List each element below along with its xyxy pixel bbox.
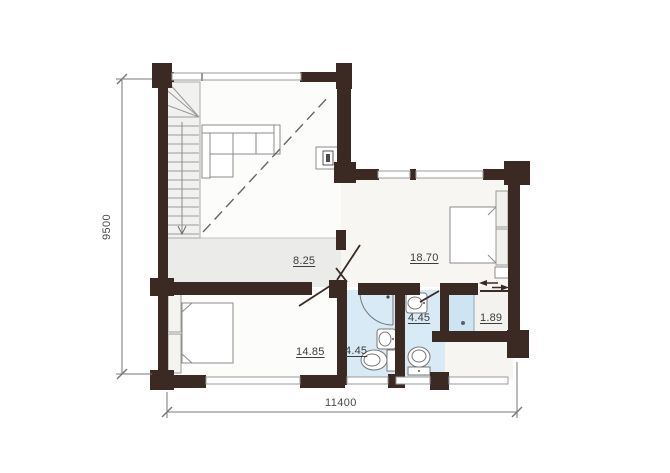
- bottom-wall: [150, 375, 206, 388]
- staircase: [164, 82, 200, 238]
- window: [378, 171, 410, 178]
- washbasin-bath2: [406, 293, 427, 313]
- window-mullion: [388, 374, 396, 388]
- room-area-label-bedroom-main: 18.70: [410, 252, 439, 264]
- bottom-wall: [300, 375, 345, 388]
- double-bed-second: [168, 292, 233, 373]
- room-area-label-bathroom-wc: 4.45: [408, 312, 430, 324]
- bathroom-left-wall: [337, 295, 347, 385]
- bedroom-bottom-wall: [358, 283, 420, 295]
- right-wall: [508, 168, 520, 338]
- junction-post: [430, 372, 449, 390]
- shower-hinge-dot: [386, 295, 389, 298]
- cabin-wall: [440, 295, 449, 333]
- entry-bottom-wall: [432, 331, 508, 342]
- toilet-bath2: [408, 347, 430, 375]
- left-wall: [158, 72, 168, 388]
- washbasin-bath1: [377, 329, 396, 349]
- top-wall: [300, 72, 338, 82]
- dimension-depth-label: 9500: [101, 214, 113, 240]
- hall-bottom-wall: [150, 282, 312, 295]
- floor-plan-canvas: 8.25 18.70 14.85 4.45 4.45 1.89 11400 95…: [0, 0, 670, 473]
- wardrobe: [495, 267, 510, 278]
- window: [206, 377, 300, 384]
- room-area-label-hall: 8.25: [293, 255, 315, 267]
- bathroom-divider-wall: [395, 295, 405, 388]
- room-area-label-bedroom-second: 14.85: [296, 346, 325, 358]
- dimension-width-label: 11400: [325, 397, 357, 409]
- store-room-floor: [445, 338, 513, 379]
- window: [396, 377, 430, 384]
- bedroom-bottom-wall: [440, 283, 478, 295]
- room-area-label-bathroom-shower: 4.45: [345, 345, 367, 357]
- living-right-wall: [337, 72, 351, 182]
- window: [449, 377, 508, 384]
- window-mullion: [410, 169, 416, 180]
- room-area-label-entry: 1.89: [480, 312, 502, 324]
- window: [347, 377, 388, 384]
- window-tick: [201, 73, 203, 81]
- shower-cabin: [448, 293, 474, 333]
- bedroom-top-wall: [483, 169, 508, 180]
- window: [172, 73, 301, 80]
- hall-stub-wall: [336, 230, 346, 250]
- bedroom-top-wall: [352, 169, 379, 180]
- window: [416, 171, 483, 178]
